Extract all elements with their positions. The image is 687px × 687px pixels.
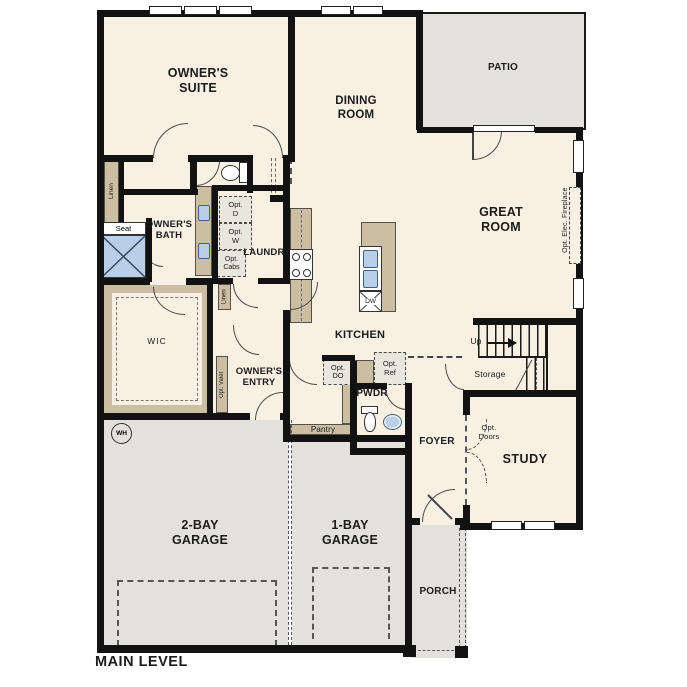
- up-arrow-head: [508, 338, 517, 348]
- floor-plan: Linen Opt. Valet Linen: [0, 0, 687, 687]
- room-label-patio: PATIO: [472, 62, 534, 74]
- room-label-owners-entry: OWNER'S ENTRY: [227, 366, 291, 389]
- linen-hall-label: Linen: [219, 285, 230, 309]
- dishwasher-label: DW: [364, 298, 377, 305]
- wall-wc-left: [190, 155, 197, 193]
- water-heater-label: WH: [116, 430, 127, 437]
- porch-post-left: [403, 645, 416, 657]
- wall-pwdr-bottom: [350, 448, 412, 455]
- opening-kitchen-foyer: [408, 356, 462, 358]
- opt-dryer-label: Opt. D: [228, 201, 242, 218]
- opt-double-oven-label: Opt. DO: [331, 364, 345, 381]
- wall-bottom-garage: [97, 645, 411, 653]
- wall-linen-side: [119, 158, 124, 222]
- vanity-sink-2: [198, 243, 210, 259]
- wall-laundry-bottom-a: [212, 278, 233, 284]
- porch-post-right: [455, 646, 468, 658]
- porch-edge-bottom: [413, 650, 459, 651]
- opt-valet-label: Opt. Valet: [217, 357, 227, 412]
- wall-stairs-half: [473, 318, 583, 325]
- plan-title: MAIN LEVEL: [95, 654, 255, 671]
- wall-garage2-top-a: [97, 413, 250, 420]
- wall-study-left-b: [463, 505, 470, 523]
- wall-left: [97, 10, 104, 653]
- wall-pwdr-left: [350, 361, 357, 455]
- up-arrow-line: [487, 342, 509, 344]
- garage1-door: [312, 567, 390, 639]
- opt-refrigerator-label: Opt. Ref: [383, 360, 397, 377]
- wall-garage2-top-b: [280, 413, 290, 420]
- room-label-dining: DINING ROOM: [322, 95, 390, 123]
- wall-hall-right-upper: [283, 158, 290, 280]
- wall-wic-top-a: [97, 278, 150, 285]
- door-patio-leaf: [472, 131, 474, 160]
- wall-study-top: [463, 390, 583, 397]
- room-label-owners-suite: OWNER'S SUITE: [162, 66, 234, 96]
- room-label-porch: PORCH: [407, 586, 469, 598]
- window-study-1: [491, 521, 522, 530]
- pwdr-toilet-bowl: [364, 412, 376, 432]
- fireplace-outline: [569, 187, 581, 264]
- room-label-2bay-garage: 2-BAY GARAGE: [164, 518, 236, 548]
- opt-dryer-box: Opt. D: [219, 196, 252, 223]
- island-sink-basin-1: [363, 250, 378, 268]
- burner-4: [303, 269, 311, 277]
- room-label-owners-bath: OWNER'S BATH: [126, 219, 212, 242]
- pwdr-sink: [383, 414, 402, 430]
- wall-garage1-top: [283, 435, 407, 442]
- wall-bath-nook: [120, 189, 198, 195]
- wall-garage-foyer-porch: [405, 383, 412, 647]
- wall-wic-right: [207, 278, 213, 420]
- stairs-stringer: [546, 325, 548, 395]
- wall-greatroom-top-a: [417, 127, 473, 133]
- window-study-2: [524, 521, 555, 530]
- dishwasher: DW: [359, 291, 382, 312]
- wall-dining-right: [416, 10, 423, 130]
- linen-label: Linen: [105, 159, 118, 224]
- room-label-storage: Storage: [468, 369, 512, 379]
- wall-greatroom-top-b: [535, 127, 583, 133]
- water-heater: WH: [111, 423, 132, 444]
- burner-2: [303, 253, 311, 261]
- wall-suite-bottom-a: [97, 155, 153, 162]
- burner-3: [292, 269, 300, 277]
- opt-fireplace-label: Opt. Elec. Fireplace: [562, 175, 570, 265]
- wall-dining-stub: [270, 195, 288, 202]
- garage2-door: [117, 580, 277, 646]
- island-sink-basin-2: [363, 270, 378, 288]
- wc-toilet-bowl: [221, 165, 240, 181]
- stairs-up-label: Up: [467, 336, 485, 346]
- window-greatroom-upper: [573, 140, 584, 173]
- opt-refrigerator-box: Opt. Ref: [374, 352, 406, 385]
- room-label-great-room: GREAT ROOM: [465, 205, 537, 235]
- wall-laundry-top: [212, 185, 290, 191]
- opt-washer-box: Opt. W: [219, 223, 252, 250]
- room-label-kitchen: KITCHEN: [328, 329, 392, 342]
- opening-dining-hall: [271, 158, 276, 198]
- garage-divider: [288, 420, 292, 645]
- room-label-study: STUDY: [489, 452, 561, 467]
- wall-study-left-a: [463, 397, 470, 415]
- linen-closet-hall: Linen: [218, 284, 231, 310]
- wall-suite-dining: [288, 10, 295, 158]
- linen-closet-bath: Linen: [104, 158, 119, 225]
- room-label-foyer: FOYER: [407, 436, 467, 448]
- window-suite-3: [219, 6, 252, 15]
- opt-washer-label: Opt. W: [228, 228, 242, 245]
- room-label-wic: WIC: [134, 336, 180, 346]
- opt-doors-line: [465, 415, 467, 505]
- wall-suite-bottom-b: [188, 155, 253, 162]
- window-suite-2: [184, 6, 217, 15]
- window-greatroom-lower: [573, 278, 584, 309]
- shower-x-pattern: [102, 236, 145, 277]
- pantry-label: Pantry: [296, 425, 350, 435]
- window-suite-1: [149, 6, 182, 15]
- wall-bath-laundry: [212, 185, 218, 278]
- opt-doors-label: Opt. Doors: [470, 424, 508, 441]
- room-label-pwdr: PWDR: [343, 388, 401, 400]
- opt-double-oven-box: Opt. DO: [323, 359, 353, 385]
- window-dining-1: [321, 6, 351, 15]
- patio-door-sill: [473, 125, 535, 132]
- wall-porch-foyer-a: [412, 518, 420, 525]
- room-label-1bay-garage: 1-BAY GARAGE: [314, 518, 386, 548]
- wic-shelf-dashline: [116, 297, 198, 401]
- window-dining-2: [353, 6, 383, 15]
- room-label-laundry: LAUNDRY: [238, 247, 296, 258]
